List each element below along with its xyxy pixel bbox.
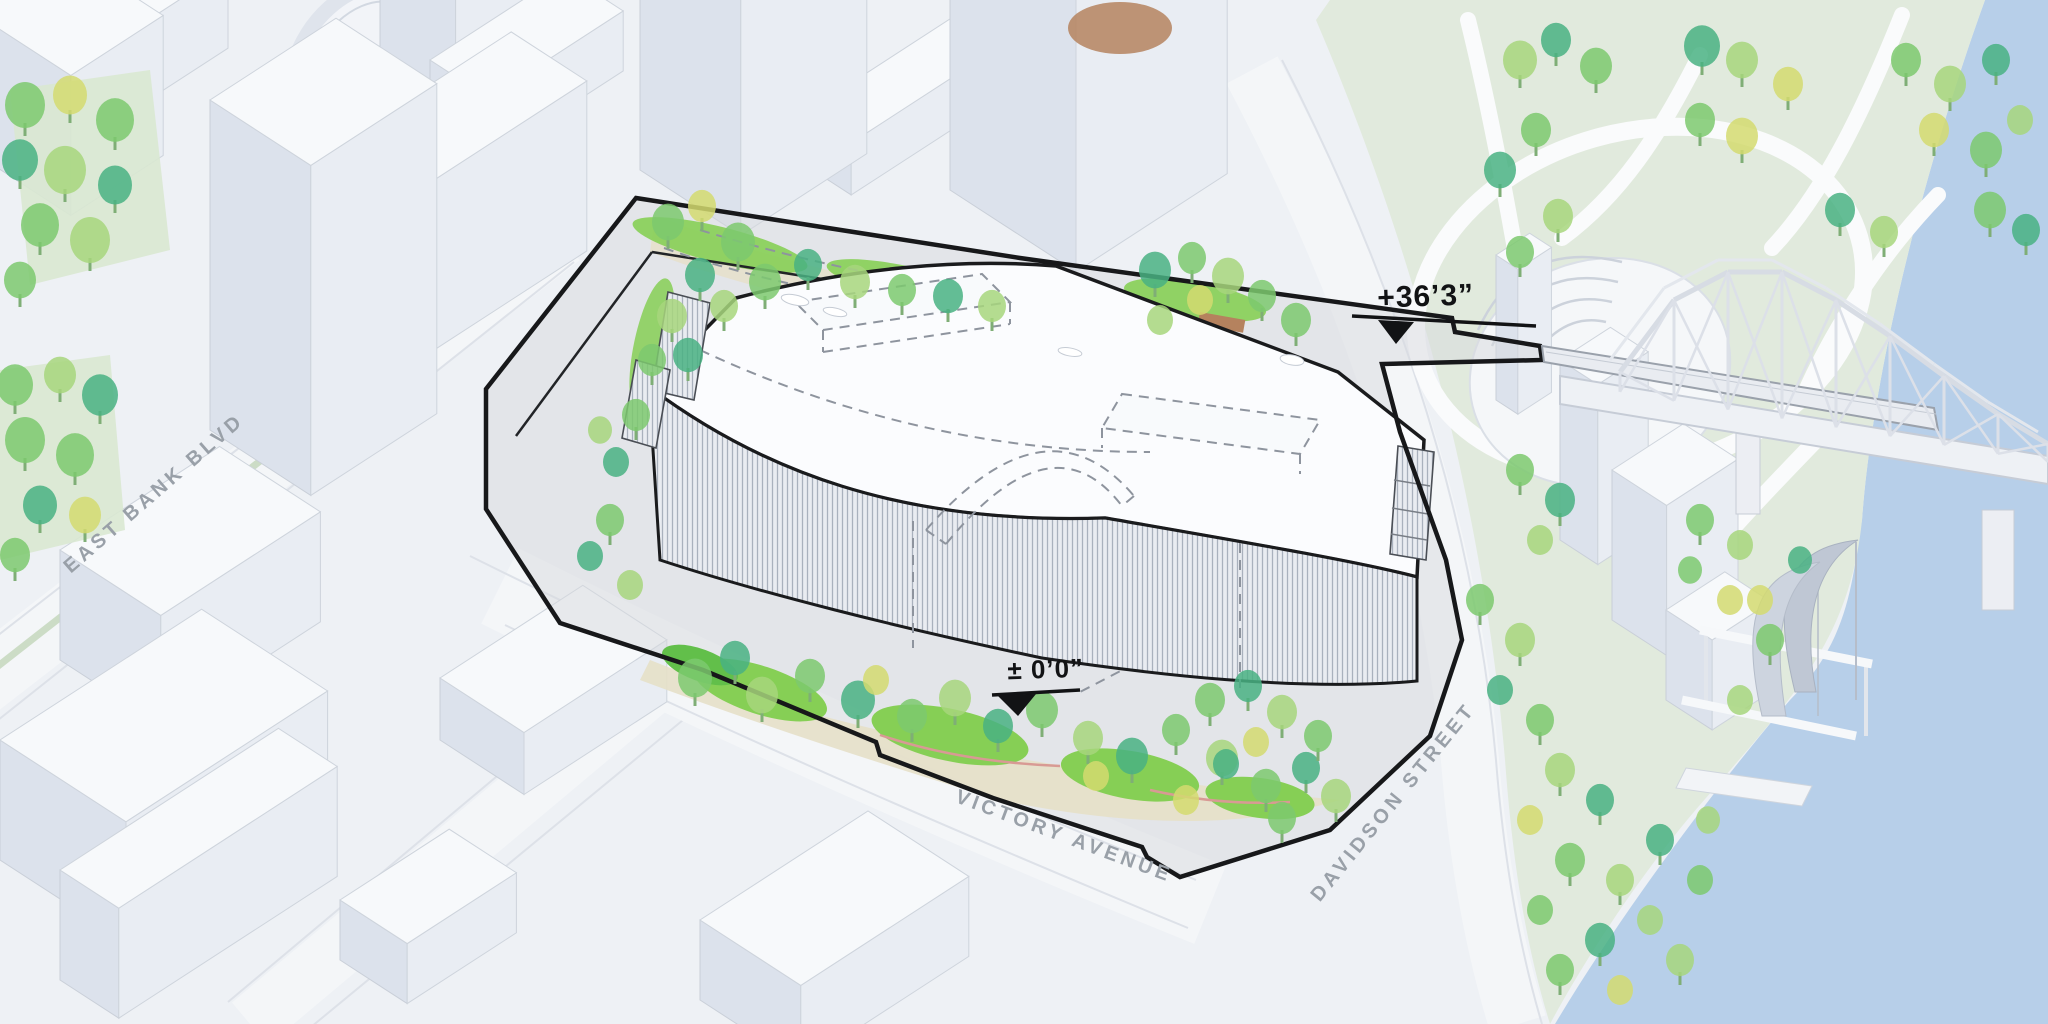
tree-icon <box>1756 624 1784 656</box>
tree-icon <box>1606 864 1634 896</box>
tree-icon <box>1586 784 1614 816</box>
tree-icon <box>70 217 110 263</box>
tree-icon <box>1139 252 1171 289</box>
tree-icon <box>1527 525 1553 555</box>
tree-icon <box>685 258 715 293</box>
tree-icon <box>603 447 629 477</box>
tree-icon <box>840 265 870 300</box>
tree-icon <box>96 98 134 142</box>
tree-icon <box>1268 802 1296 834</box>
building-block <box>1496 255 1518 414</box>
tree-icon <box>1503 40 1537 79</box>
tree-icon <box>1187 285 1213 315</box>
tree-icon <box>1212 258 1244 295</box>
tree-icon <box>1696 806 1720 834</box>
tree-icon <box>1173 785 1199 815</box>
tree-icon <box>1545 753 1575 788</box>
tree-icon <box>678 658 712 697</box>
tree-icon <box>1686 504 1714 536</box>
tree-icon <box>1726 118 1758 155</box>
tree-icon <box>1684 25 1720 66</box>
tree-icon <box>1687 865 1713 895</box>
tree-icon <box>638 344 666 376</box>
tree-icon <box>1178 242 1206 274</box>
tree-icon <box>673 338 703 373</box>
tree-icon <box>1526 704 1554 736</box>
tree-icon <box>1970 132 2002 169</box>
tree-icon <box>1243 727 1269 757</box>
tree-icon <box>1545 483 1575 518</box>
tree-icon <box>933 279 963 314</box>
tree-icon <box>2 139 38 180</box>
tree-icon <box>1506 454 1534 486</box>
tree-icon <box>1162 714 1190 746</box>
tree-icon <box>749 264 781 301</box>
tree-icon <box>2012 214 2040 246</box>
tree-icon <box>1685 103 1715 138</box>
tree-icon <box>1213 749 1239 779</box>
tree-icon <box>1934 66 1966 103</box>
tree-icon <box>1116 738 1148 775</box>
tree-icon <box>1727 530 1753 560</box>
tree-icon <box>1543 199 1573 234</box>
tree-icon <box>44 146 86 194</box>
tree-icon <box>652 204 684 241</box>
tree-icon <box>983 709 1013 744</box>
tree-icon <box>5 417 45 463</box>
tree-icon <box>1466 584 1494 616</box>
site-plan-canvas: +36’3” ± 0’0” EAST BANK BLVD VICTORY AVE… <box>0 0 2048 1024</box>
tree-icon <box>721 222 755 261</box>
tree-icon <box>1585 923 1615 958</box>
tree-icon <box>1646 824 1674 856</box>
tree-icon <box>897 699 927 734</box>
tree-icon <box>746 677 778 714</box>
site-plan-page: +36’3” ± 0’0” EAST BANK BLVD VICTORY AVE… <box>0 0 2048 1024</box>
tree-icon <box>1607 975 1633 1005</box>
tree-icon <box>1484 152 1516 189</box>
tree-icon <box>1541 23 1571 58</box>
tree-icon <box>863 665 889 695</box>
tree-icon <box>1637 905 1663 935</box>
tree-icon <box>1546 954 1574 986</box>
tree-icon <box>69 497 101 534</box>
tree-icon <box>1919 113 1949 148</box>
tree-icon <box>1083 761 1109 791</box>
tree-icon <box>588 416 612 444</box>
tree-icon <box>1891 43 1921 78</box>
tree-icon <box>1251 769 1281 804</box>
tree-icon <box>939 680 971 717</box>
tree-icon <box>1521 113 1551 148</box>
tree-icon <box>1304 720 1332 752</box>
tree-icon <box>1825 193 1855 228</box>
tree-icon <box>710 290 738 322</box>
tree-icon <box>1870 216 1898 248</box>
tree-icon <box>1666 944 1694 976</box>
tree-icon <box>577 541 603 571</box>
elevation-value-ground: ± 0’0” <box>1007 653 1085 686</box>
elevation-value-upper: +36’3” <box>1377 278 1475 314</box>
tree-icon <box>1773 67 1803 102</box>
tree-icon <box>657 299 687 334</box>
tree-icon <box>1248 280 1276 312</box>
tree-icon <box>2007 105 2033 135</box>
tree-icon <box>82 374 118 415</box>
tree-icon <box>1506 236 1534 268</box>
tree-icon <box>720 641 750 676</box>
tree-icon <box>56 433 94 477</box>
tree-icon <box>978 290 1006 322</box>
tree-icon <box>1974 192 2006 229</box>
tree-icon <box>1726 42 1758 79</box>
tree-icon <box>1292 752 1320 784</box>
tree-icon <box>1195 683 1225 718</box>
tree-icon <box>1267 695 1297 730</box>
tree-icon <box>44 357 76 394</box>
tree-icon <box>4 262 36 299</box>
tree-icon <box>596 504 624 536</box>
tree-icon <box>1982 44 2010 76</box>
tree-icon <box>794 249 822 281</box>
tree-icon <box>0 538 30 573</box>
tree-icon <box>1678 556 1702 584</box>
tree-icon <box>1747 585 1773 615</box>
tree-icon <box>1527 895 1553 925</box>
tree-icon <box>1505 623 1535 658</box>
bridge-pier <box>1982 510 2014 610</box>
tree-icon <box>21 203 59 247</box>
tree-icon <box>1727 685 1753 715</box>
tree-icon <box>23 485 57 524</box>
tree-icon <box>888 274 916 306</box>
tree-icon <box>688 190 716 222</box>
tree-icon <box>1517 805 1543 835</box>
tree-icon <box>1717 585 1743 615</box>
tree-icon <box>1788 546 1812 574</box>
tree-icon <box>53 75 87 114</box>
tree-icon <box>795 659 825 694</box>
tree-icon <box>1580 48 1612 85</box>
tree-icon <box>1073 721 1103 756</box>
tree-icon <box>98 165 132 204</box>
tree-icon <box>1321 779 1351 814</box>
tree-icon <box>1555 843 1585 878</box>
tree-icon <box>5 82 45 128</box>
tree-icon <box>617 570 643 600</box>
tree-icon <box>1234 670 1262 702</box>
tree-icon <box>1487 675 1513 705</box>
tree-icon <box>1147 305 1173 335</box>
tree-icon <box>622 399 650 431</box>
building-block <box>1518 247 1552 414</box>
tree-icon <box>1281 303 1311 338</box>
